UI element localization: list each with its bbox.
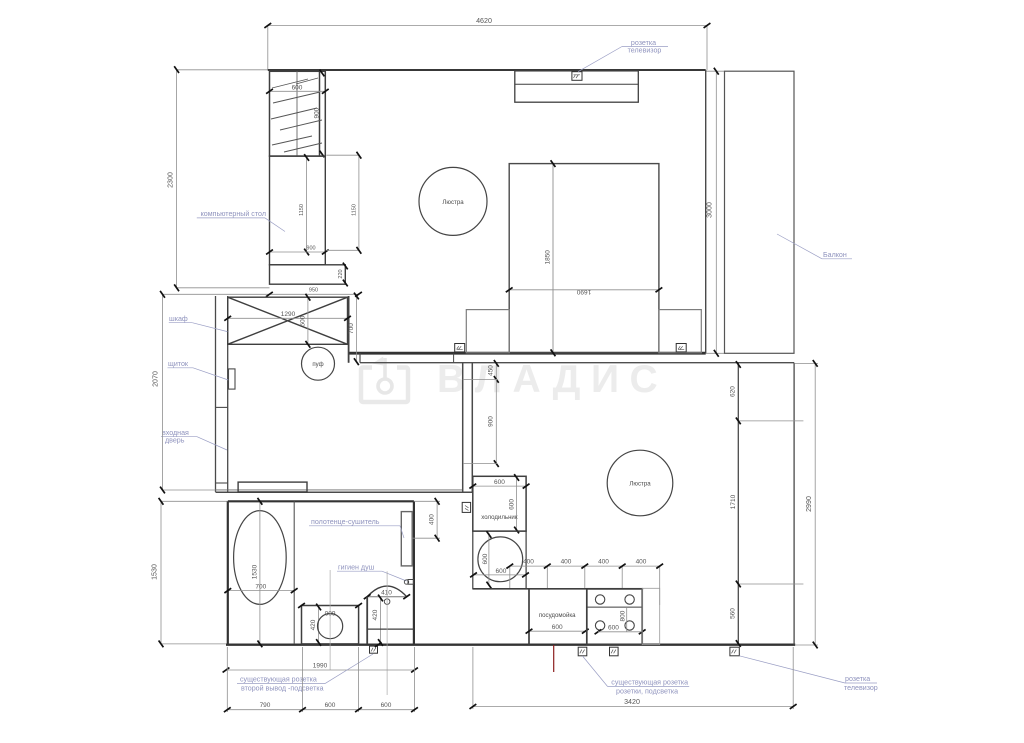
svg-text:600: 600: [292, 84, 303, 91]
svg-text:900: 900: [488, 416, 495, 427]
svg-text:существующая розетка: существующая розетка: [611, 679, 688, 687]
svg-text:2070: 2070: [152, 371, 160, 387]
svg-text:400: 400: [523, 559, 534, 566]
svg-text:1150: 1150: [351, 204, 357, 216]
svg-text:1710: 1710: [730, 494, 737, 509]
svg-text:420: 420: [372, 609, 379, 620]
svg-text:Балкон: Балкон: [823, 251, 847, 259]
svg-text:600: 600: [608, 625, 619, 632]
svg-text:компьютерный стол: компьютерный стол: [201, 210, 266, 218]
svg-text:420: 420: [310, 619, 317, 630]
svg-text:600: 600: [494, 479, 505, 486]
svg-text:220: 220: [338, 269, 344, 278]
svg-text:500: 500: [300, 315, 307, 326]
svg-text:1850: 1850: [545, 250, 552, 265]
svg-text:600: 600: [381, 702, 392, 709]
svg-text:полотенце-сушитель: полотенце-сушитель: [311, 518, 380, 526]
svg-text:1690: 1690: [576, 288, 591, 295]
svg-text:790: 790: [260, 702, 271, 709]
svg-text:существующая розетка: существующая розетка: [240, 676, 317, 684]
svg-text:второй вывод -подсветка: второй вывод -подсветка: [241, 685, 324, 693]
svg-text:1990: 1990: [313, 662, 328, 669]
svg-text:1530: 1530: [151, 564, 159, 580]
svg-text:розетка: розетка: [845, 675, 870, 683]
svg-text:2300: 2300: [167, 172, 175, 188]
svg-text:дверь: дверь: [165, 437, 185, 445]
svg-text:600: 600: [325, 702, 336, 709]
svg-text:гигиен душ: гигиен душ: [338, 564, 375, 572]
svg-text:телевизор: телевизор: [844, 684, 878, 692]
svg-text:900: 900: [306, 246, 315, 252]
svg-text:3420: 3420: [624, 698, 640, 706]
svg-text:950: 950: [309, 287, 318, 293]
svg-text:450: 450: [488, 365, 495, 376]
svg-text:560: 560: [730, 608, 737, 619]
svg-text:600: 600: [482, 553, 489, 564]
svg-text:400: 400: [636, 559, 647, 566]
svg-text:щиток: щиток: [168, 360, 189, 368]
svg-text:400: 400: [598, 559, 609, 566]
svg-text:холодильник: холодильник: [481, 514, 518, 521]
svg-text:посудомойка: посудомойка: [539, 612, 576, 619]
svg-text:телевизор: телевизор: [628, 47, 662, 55]
svg-text:410: 410: [381, 590, 392, 597]
svg-text:400: 400: [429, 514, 436, 525]
svg-text:1150: 1150: [299, 204, 305, 216]
svg-text:розетки, подсветка: розетки, подсветка: [616, 688, 678, 696]
svg-text:800: 800: [620, 610, 627, 621]
svg-text:Люстра: Люстра: [442, 199, 464, 206]
svg-text:700: 700: [348, 323, 355, 334]
svg-text:Люстра: Люстра: [629, 481, 651, 488]
svg-text:600: 600: [495, 568, 506, 575]
svg-text:пуф: пуф: [312, 361, 323, 368]
svg-text:2990: 2990: [805, 496, 813, 512]
svg-text:700: 700: [255, 583, 266, 590]
svg-text:600: 600: [552, 624, 563, 631]
svg-text:4620: 4620: [476, 17, 492, 25]
svg-text:3000: 3000: [706, 202, 714, 218]
svg-text:600: 600: [508, 499, 515, 510]
svg-text:620: 620: [730, 386, 737, 397]
svg-text:400: 400: [561, 559, 572, 566]
svg-text:1290: 1290: [281, 311, 296, 318]
svg-text:900: 900: [314, 107, 321, 118]
svg-text:шкаф: шкаф: [169, 315, 188, 323]
svg-text:1530: 1530: [251, 564, 258, 579]
